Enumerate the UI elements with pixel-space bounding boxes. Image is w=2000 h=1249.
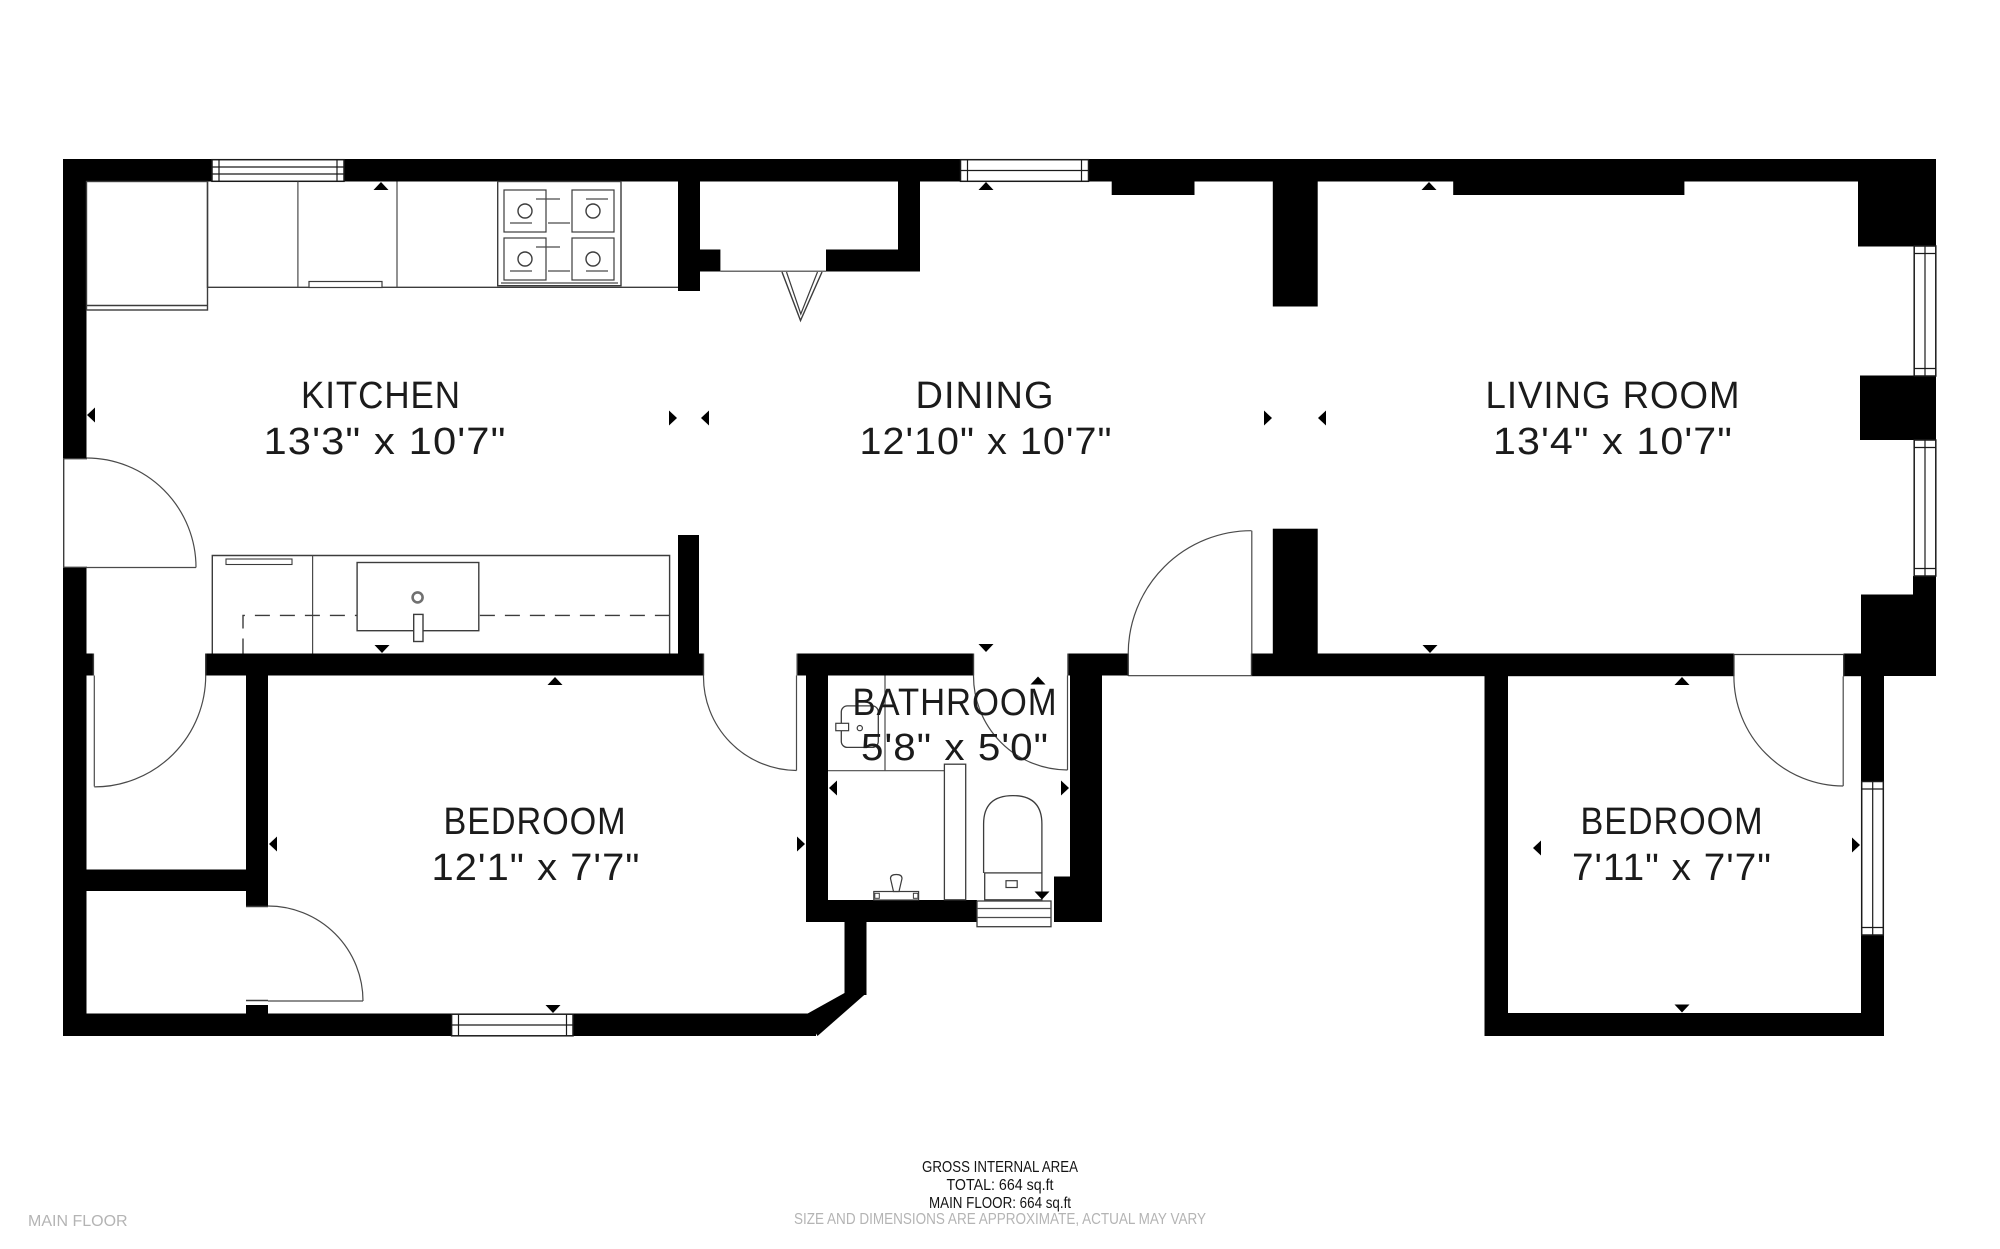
svg-text:TOTAL: 664 sq.ft: TOTAL: 664 sq.ft — [947, 1177, 1054, 1194]
svg-text:5'8" x 5'0": 5'8" x 5'0" — [861, 727, 1049, 769]
svg-text:MAIN FLOOR: MAIN FLOOR — [28, 1213, 128, 1230]
svg-text:KITCHEN: KITCHEN — [301, 375, 461, 417]
svg-text:LIVING ROOM: LIVING ROOM — [1486, 375, 1741, 417]
svg-text:13'3" x 10'7": 13'3" x 10'7" — [264, 421, 507, 463]
svg-text:BEDROOM: BEDROOM — [444, 801, 627, 843]
svg-text:DINING: DINING — [916, 375, 1055, 417]
svg-text:7'11" x 7'7": 7'11" x 7'7" — [1572, 847, 1772, 889]
svg-text:12'10" x 10'7": 12'10" x 10'7" — [860, 421, 1113, 463]
svg-text:MAIN FLOOR: 664 sq.ft: MAIN FLOOR: 664 sq.ft — [929, 1195, 1071, 1212]
svg-text:BEDROOM: BEDROOM — [1581, 801, 1764, 843]
svg-text:12'1" x 7'7": 12'1" x 7'7" — [432, 847, 641, 889]
svg-text:GROSS INTERNAL AREA: GROSS INTERNAL AREA — [922, 1159, 1078, 1176]
svg-text:SIZE AND DIMENSIONS ARE APPROX: SIZE AND DIMENSIONS ARE APPROXIMATE, ACT… — [794, 1211, 1206, 1228]
svg-text:BATHROOM: BATHROOM — [853, 682, 1058, 724]
svg-text:13'4" x 10'7": 13'4" x 10'7" — [1493, 421, 1733, 463]
